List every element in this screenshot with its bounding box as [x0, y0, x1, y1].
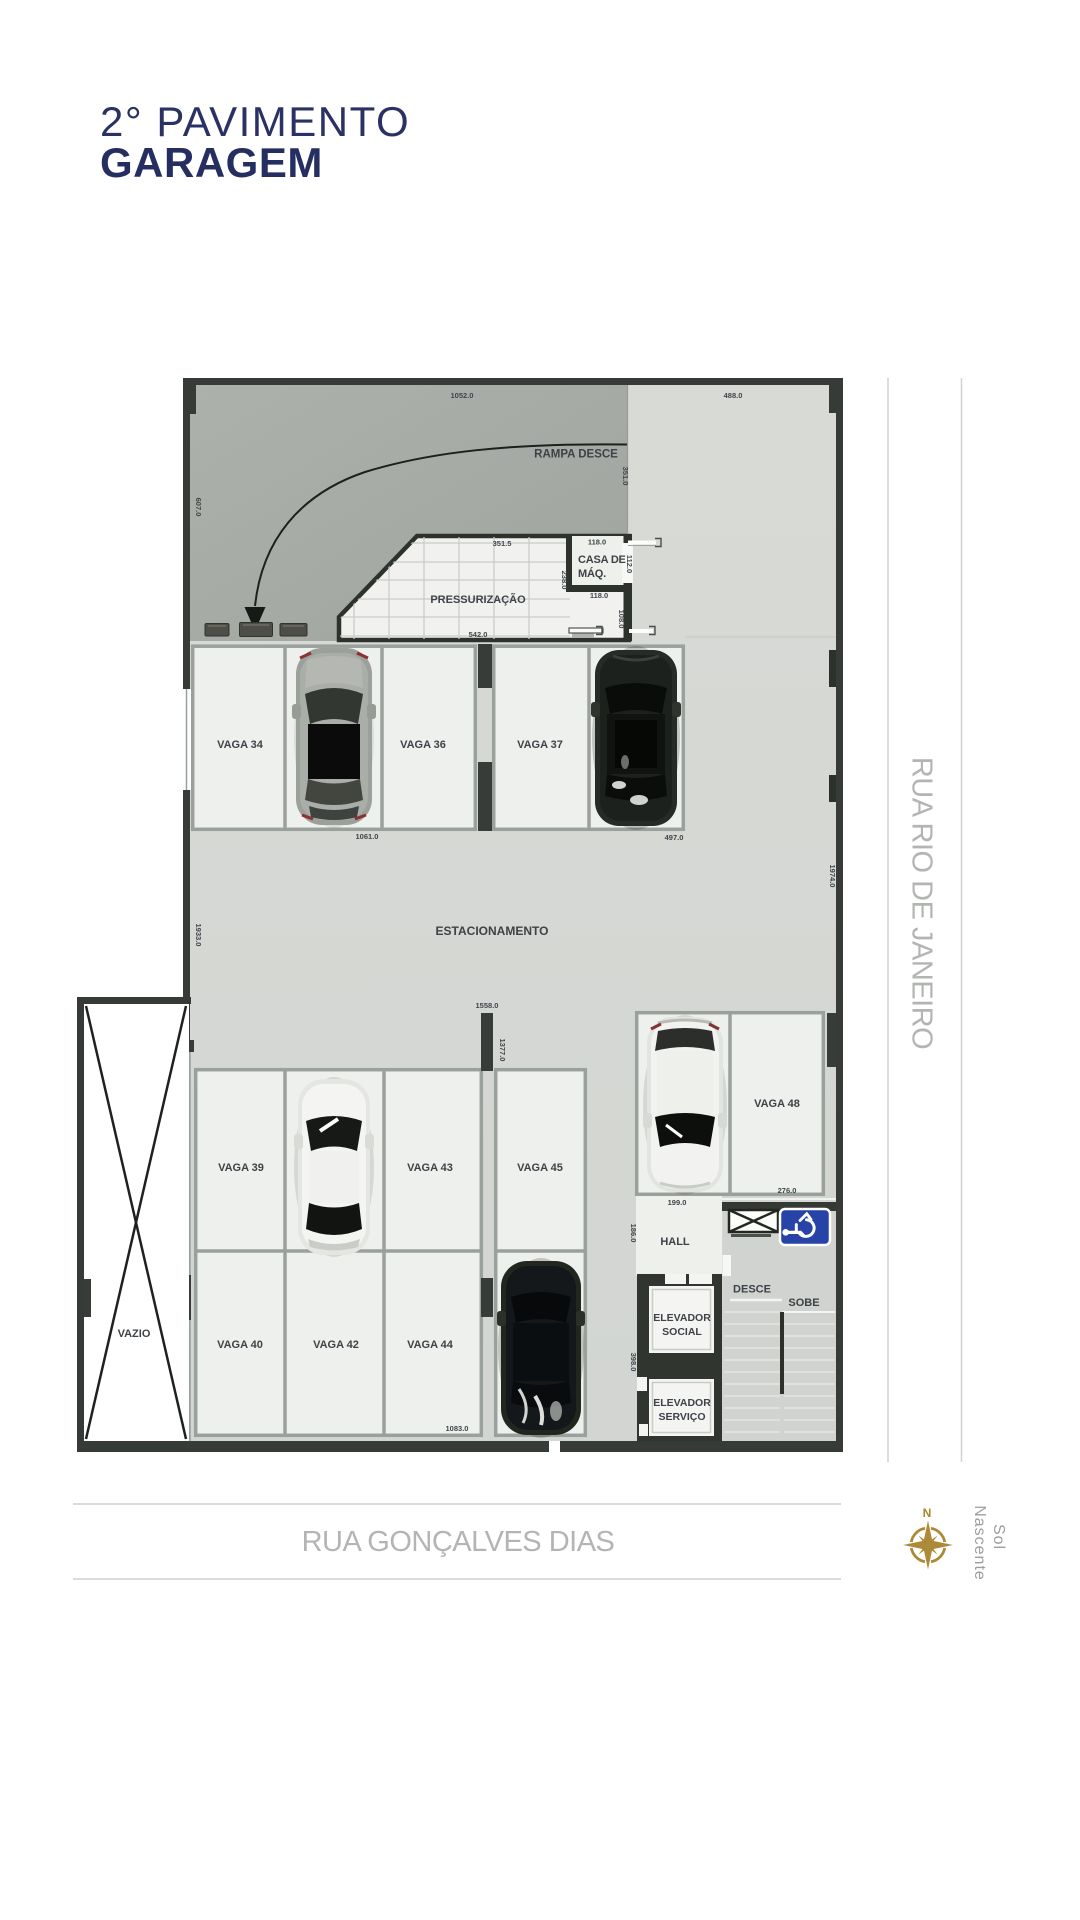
svg-text:DESCE: DESCE: [733, 1284, 771, 1296]
svg-text:2° PAVIMENTO: 2° PAVIMENTO: [100, 98, 410, 145]
svg-text:VAGA 42: VAGA 42: [313, 1339, 359, 1351]
svg-text:398.0: 398.0: [629, 1353, 638, 1372]
svg-text:1083.0: 1083.0: [446, 1424, 469, 1433]
svg-text:1974.0: 1974.0: [828, 865, 837, 888]
svg-text:CASA DE: CASA DE: [578, 554, 626, 566]
svg-text:351.5: 351.5: [493, 539, 512, 548]
svg-text:HALL: HALL: [660, 1236, 690, 1248]
svg-text:Nascente: Nascente: [971, 1505, 988, 1581]
svg-text:1377.0: 1377.0: [498, 1039, 507, 1062]
svg-text:N: N: [923, 1506, 932, 1520]
svg-text:VAGA 39: VAGA 39: [218, 1162, 264, 1174]
svg-text:ESTACIONAMENTO: ESTACIONAMENTO: [436, 924, 549, 938]
svg-text:1061.0: 1061.0: [356, 832, 379, 841]
svg-text:SOCIAL: SOCIAL: [662, 1326, 702, 1338]
svg-text:607.0: 607.0: [194, 498, 203, 517]
svg-text:SOBE: SOBE: [788, 1297, 819, 1309]
svg-text:VAGA 36: VAGA 36: [400, 739, 446, 751]
svg-text:VAGA 43: VAGA 43: [407, 1162, 453, 1174]
svg-text:118.0: 118.0: [590, 591, 608, 600]
svg-text:MÁQ.: MÁQ.: [578, 567, 606, 580]
svg-text:542.0: 542.0: [469, 630, 488, 639]
svg-text:112.0: 112.0: [625, 555, 634, 573]
svg-text:276.0: 276.0: [778, 1186, 797, 1195]
svg-text:186.0: 186.0: [629, 1224, 638, 1243]
svg-text:RUA GONÇALVES DIAS: RUA GONÇALVES DIAS: [302, 1526, 615, 1558]
svg-text:VAGA 48: VAGA 48: [754, 1098, 800, 1110]
svg-text:VAGA 34: VAGA 34: [217, 739, 264, 751]
svg-text:VAGA 37: VAGA 37: [517, 739, 563, 751]
svg-text:SERVIÇO: SERVIÇO: [658, 1411, 705, 1423]
svg-text:GARAGEM: GARAGEM: [100, 139, 323, 186]
svg-text:Sol: Sol: [990, 1524, 1007, 1550]
svg-text:1558.0: 1558.0: [476, 1001, 499, 1010]
svg-text:PRESSURIZAÇÃO: PRESSURIZAÇÃO: [430, 593, 526, 606]
svg-text:VAGA 45: VAGA 45: [517, 1162, 563, 1174]
svg-text:351.0: 351.0: [621, 467, 630, 486]
svg-text:ELEVADOR: ELEVADOR: [653, 1312, 711, 1324]
svg-text:VAGA 44: VAGA 44: [407, 1339, 454, 1351]
svg-text:118.0: 118.0: [588, 538, 606, 547]
svg-text:199.0: 199.0: [668, 1198, 687, 1207]
svg-text:ELEVADOR: ELEVADOR: [653, 1397, 711, 1409]
svg-text:1052.0: 1052.0: [451, 391, 474, 400]
svg-text:RUA RIO DE JANEIRO: RUA RIO DE JANEIRO: [905, 757, 937, 1049]
svg-text:1933.0: 1933.0: [194, 924, 203, 947]
svg-text:238.0: 238.0: [560, 571, 569, 590]
svg-text:488.0: 488.0: [724, 391, 743, 400]
svg-text:108.0: 108.0: [617, 610, 626, 629]
svg-text:497.0: 497.0: [665, 833, 684, 842]
svg-text:VAGA 40: VAGA 40: [217, 1339, 263, 1351]
svg-text:VAZIO: VAZIO: [118, 1328, 151, 1340]
svg-text:RAMPA DESCE: RAMPA DESCE: [534, 449, 618, 461]
